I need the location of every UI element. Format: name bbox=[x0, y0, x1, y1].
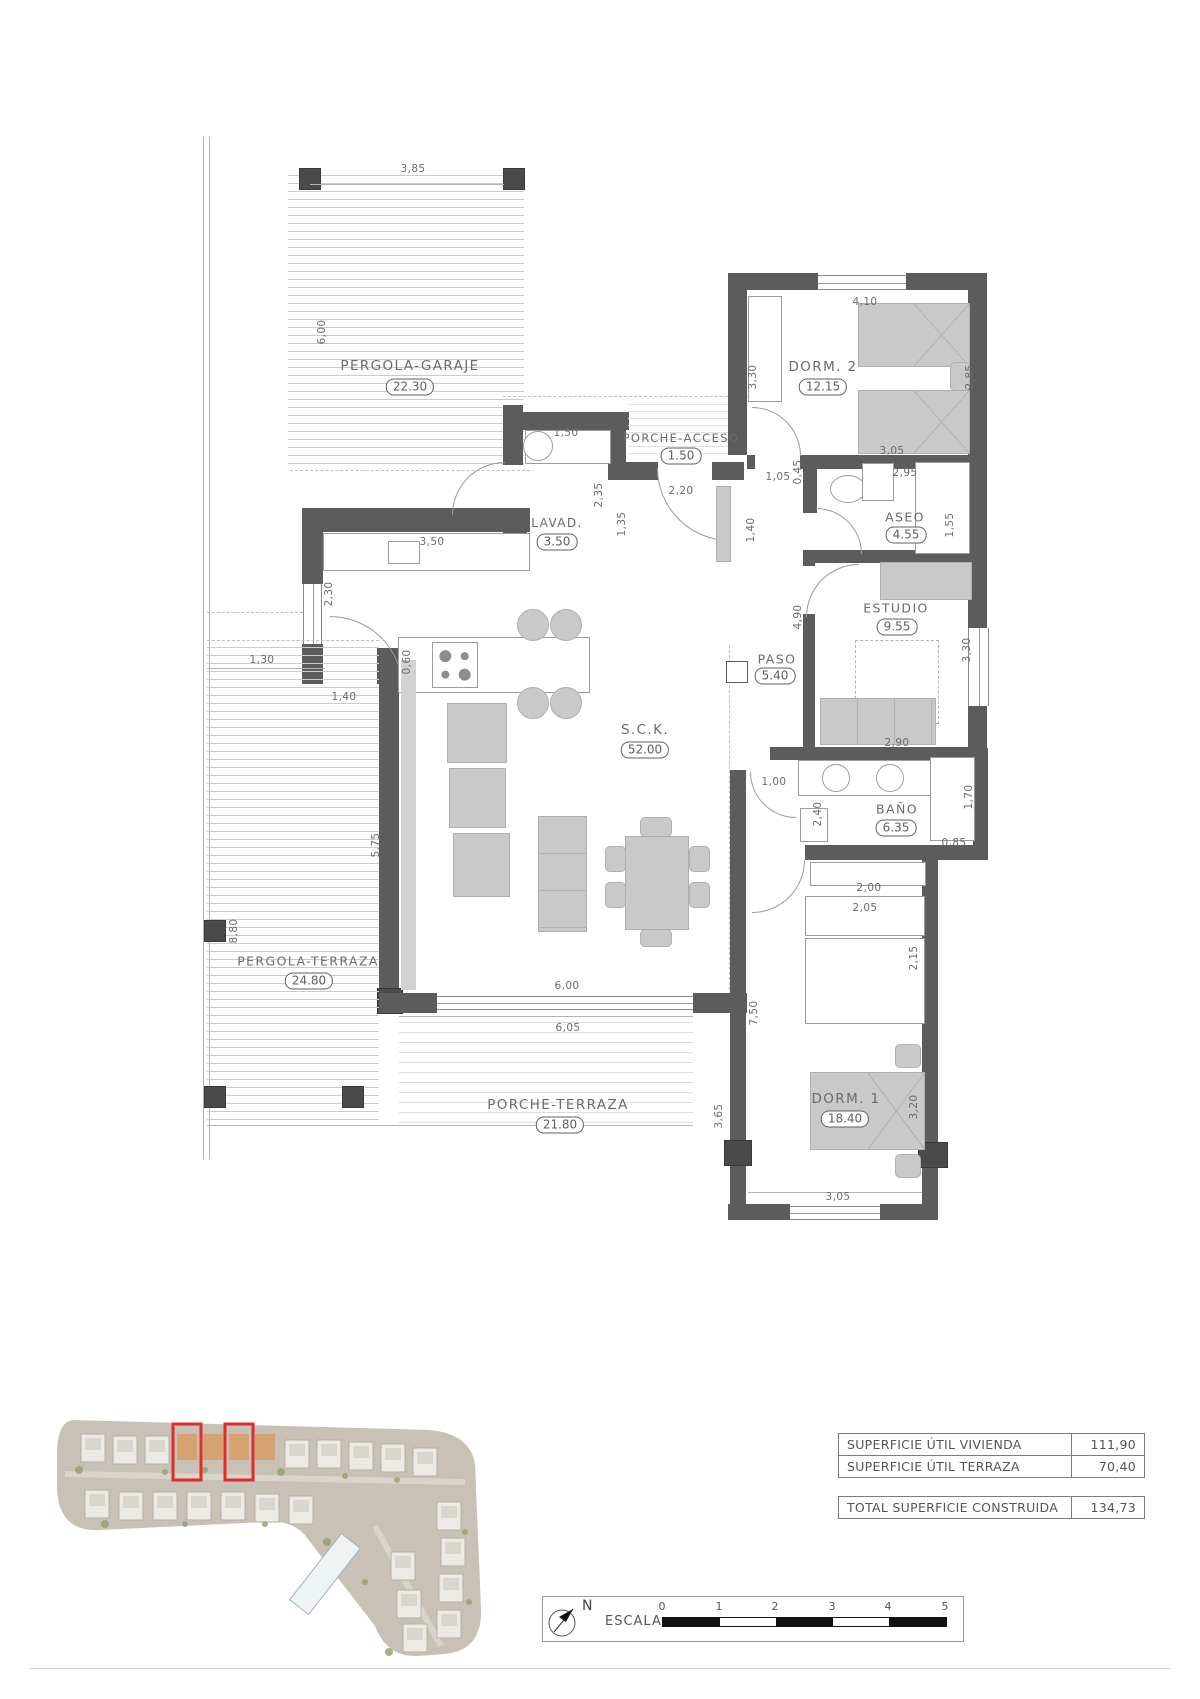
chair bbox=[605, 882, 626, 908]
dining-table bbox=[625, 836, 689, 930]
north-label: N bbox=[582, 1598, 592, 1614]
dim-text: 3,30 bbox=[747, 365, 759, 390]
total-surface-table: TOTAL SUPERFICIE CONSTRUIDA 134,73 bbox=[838, 1496, 1145, 1519]
bano-sink bbox=[876, 764, 904, 792]
dim-line bbox=[399, 1016, 693, 1017]
dim-text: 1,30 bbox=[250, 654, 275, 666]
room-area: 21.80 bbox=[536, 1117, 584, 1134]
room-area: 6.35 bbox=[876, 820, 917, 837]
wall-segment bbox=[728, 1204, 790, 1220]
bano-sink bbox=[822, 764, 850, 792]
scalebar-seg bbox=[720, 1618, 777, 1626]
nightstand bbox=[895, 1044, 921, 1068]
terrace-edge bbox=[207, 1125, 693, 1126]
dim-text: 2,35 bbox=[593, 483, 605, 508]
dim-text: 4,90 bbox=[792, 605, 804, 630]
kitchen-island bbox=[398, 637, 590, 693]
wall-segment bbox=[880, 1204, 938, 1220]
coffee-table bbox=[449, 768, 506, 828]
terrace-blind bbox=[401, 660, 416, 990]
scalebar-tick: 3 bbox=[829, 1600, 836, 1613]
dim-text: 2,85 bbox=[964, 365, 976, 390]
chair bbox=[605, 846, 626, 872]
dim-text: 2,20 bbox=[669, 485, 694, 497]
room-area: 12.15 bbox=[799, 379, 847, 396]
dim-text: 4,10 bbox=[853, 296, 878, 308]
dim-text: 1,35 bbox=[616, 512, 628, 537]
stool bbox=[550, 687, 582, 719]
estudio-sofa bbox=[820, 698, 936, 745]
room-label: PERGOLA-GARAJE bbox=[340, 358, 479, 374]
room-label: DORM. 2 bbox=[788, 359, 857, 375]
footer-rule bbox=[30, 1668, 1170, 1669]
wall-segment bbox=[973, 748, 988, 848]
room-label: PORCHE-ACCESO bbox=[623, 431, 740, 445]
dim-text: 3,20 bbox=[908, 1095, 920, 1120]
dim-text: 3,65 bbox=[713, 1104, 725, 1129]
dim-text: 2,00 bbox=[857, 882, 882, 894]
pergola-column bbox=[299, 168, 321, 190]
dim-text: 2,95 bbox=[893, 467, 918, 479]
dim-text: 1,40 bbox=[745, 518, 757, 543]
wall-segment bbox=[803, 550, 815, 566]
wall-segment bbox=[747, 455, 755, 469]
wall-segment bbox=[379, 993, 437, 1013]
scalebar-seg bbox=[663, 1618, 720, 1626]
room-area: 22.30 bbox=[386, 379, 434, 396]
wall-segment bbox=[379, 684, 399, 1014]
bano-vanity bbox=[798, 760, 932, 796]
dim-text: 0,85 bbox=[942, 837, 967, 849]
dim-text: 2,30 bbox=[323, 582, 335, 607]
estudio-cabinet bbox=[880, 562, 972, 600]
scalebar-tick: 1 bbox=[716, 1600, 723, 1613]
kitchen-window bbox=[303, 584, 322, 644]
washing-machine bbox=[523, 431, 553, 461]
hall-radiator bbox=[716, 486, 731, 562]
dim-text: 1,70 bbox=[963, 785, 975, 810]
room-area: 3.50 bbox=[537, 534, 578, 551]
pergola-column bbox=[503, 168, 525, 190]
surface-label: TOTAL SUPERFICIE CONSTRUIDA bbox=[839, 1497, 1072, 1519]
chair bbox=[689, 846, 710, 872]
nightstand bbox=[895, 1154, 921, 1178]
wall-segment bbox=[728, 273, 747, 455]
stool bbox=[517, 687, 549, 719]
aseo-cistern bbox=[862, 463, 894, 501]
armchair bbox=[453, 833, 510, 897]
dim-line bbox=[310, 184, 504, 185]
aseo-sink bbox=[830, 475, 866, 503]
pergola-terraza-hatch bbox=[207, 640, 379, 1125]
surface-table: SUPERFICIE ÚTIL VIVIENDA 111,90 SUPERFIC… bbox=[838, 1433, 1145, 1478]
paso-dash bbox=[729, 645, 730, 990]
room-area: 5.40 bbox=[755, 668, 796, 685]
stool bbox=[550, 609, 582, 641]
paso-marker bbox=[726, 661, 748, 683]
plan-sheet: PERGOLA-GARAJE 22.30 PORCHE-ACCESO 1.50 … bbox=[0, 0, 1200, 1699]
terrace-column bbox=[204, 1086, 226, 1108]
dim-text: 3,05 bbox=[826, 1191, 851, 1203]
chair bbox=[689, 882, 710, 908]
north-arrow-icon bbox=[546, 1604, 582, 1638]
room-label: ESTUDIO bbox=[863, 601, 929, 616]
surface-label: SUPERFICIE ÚTIL TERRAZA bbox=[839, 1456, 1072, 1478]
dorm1-wardrobe bbox=[805, 938, 925, 1024]
table-row: SUPERFICIE ÚTIL TERRAZA 70,40 bbox=[839, 1456, 1145, 1478]
room-area: 24.80 bbox=[285, 973, 333, 990]
site-plan-aerial bbox=[45, 1412, 485, 1670]
scalebar-seg bbox=[833, 1618, 890, 1626]
wall-segment bbox=[608, 462, 658, 480]
room-area: 4.55 bbox=[886, 527, 927, 544]
surface-value: 70,40 bbox=[1072, 1456, 1145, 1478]
dim-text: 1,50 bbox=[554, 427, 579, 439]
dim-text: 1,55 bbox=[944, 513, 956, 538]
roof-dash bbox=[207, 612, 303, 613]
aseo-door-arc bbox=[816, 508, 862, 554]
wall-segment bbox=[728, 273, 818, 290]
table-row: SUPERFICIE ÚTIL VIVIENDA 111,90 bbox=[839, 1434, 1145, 1456]
chair bbox=[640, 929, 672, 947]
boundary-line bbox=[203, 137, 204, 1159]
dim-line bbox=[207, 668, 325, 669]
scalebar-seg bbox=[776, 1618, 833, 1626]
armchair bbox=[447, 703, 507, 763]
surface-value: 111,90 bbox=[1072, 1434, 1145, 1456]
dim-text: 3,85 bbox=[401, 163, 426, 175]
dim-text: 3,05 bbox=[880, 445, 905, 457]
dim-text: 1,40 bbox=[332, 691, 357, 703]
scalebar-tick: 4 bbox=[885, 1600, 892, 1613]
wall-segment bbox=[968, 706, 987, 748]
dim-text: 2,15 bbox=[908, 946, 920, 971]
stool bbox=[517, 609, 549, 641]
scalebar bbox=[662, 1617, 947, 1627]
bed-single bbox=[858, 390, 970, 454]
dim-text: 6,00 bbox=[555, 980, 580, 992]
scalebar-tick: 5 bbox=[942, 1600, 949, 1613]
room-area: 52.00 bbox=[621, 742, 669, 759]
dim-text: 3,50 bbox=[420, 536, 445, 548]
dorm1-window bbox=[790, 1206, 880, 1220]
room-label: S.C.K. bbox=[621, 722, 669, 738]
dorm1-door-arc bbox=[752, 860, 805, 913]
bed-single bbox=[858, 303, 970, 367]
dim-text: 1,00 bbox=[762, 776, 787, 788]
surface-value: 134,73 bbox=[1072, 1497, 1145, 1519]
wall-segment bbox=[803, 455, 817, 513]
dim-text: 5,75 bbox=[370, 833, 382, 858]
wall-segment bbox=[302, 508, 323, 584]
room-area: 9.55 bbox=[877, 619, 918, 636]
dim-text: 2,90 bbox=[885, 737, 910, 749]
sck-window bbox=[437, 996, 693, 1010]
kitchen-sink bbox=[388, 541, 420, 564]
estudio-door-arc bbox=[806, 564, 859, 617]
scalebar-seg bbox=[889, 1618, 946, 1626]
cooktop bbox=[432, 642, 478, 688]
roof-dash bbox=[503, 396, 758, 397]
room-label: DORM. 1 bbox=[811, 1091, 880, 1107]
dim-text: 8,80 bbox=[228, 919, 240, 944]
dorm2-door-arc bbox=[752, 407, 801, 456]
wall-column bbox=[724, 1140, 752, 1166]
wall-segment bbox=[803, 614, 815, 750]
terrace-door-arc bbox=[330, 616, 403, 689]
scalebar-tick: 0 bbox=[659, 1600, 666, 1613]
terrace-column bbox=[204, 920, 226, 942]
room-label: PASO bbox=[758, 652, 797, 667]
dim-text: 0,45 bbox=[792, 460, 804, 485]
room-label: BAÑO bbox=[876, 802, 918, 817]
dim-text: 0,60 bbox=[401, 650, 413, 675]
room-label: LAVAD. bbox=[531, 516, 583, 530]
dim-text: 6,00 bbox=[316, 320, 328, 345]
dim-text: 6,05 bbox=[556, 1022, 581, 1034]
terrace-column bbox=[342, 1086, 364, 1108]
scalebar-tick: 2 bbox=[772, 1600, 779, 1613]
dim-text: 2,40 bbox=[812, 802, 824, 827]
chair bbox=[640, 817, 672, 837]
sofa bbox=[538, 816, 587, 932]
room-label: PORCHE-TERRAZA bbox=[487, 1097, 629, 1113]
table-row: TOTAL SUPERFICIE CONSTRUIDA 134,73 bbox=[839, 1497, 1145, 1519]
surface-label: SUPERFICIE ÚTIL VIVIENDA bbox=[839, 1434, 1072, 1456]
dim-text: 7,50 bbox=[748, 1001, 760, 1026]
dorm2-window bbox=[818, 275, 906, 290]
room-label: ASEO bbox=[885, 510, 925, 525]
dim-text: 3,30 bbox=[961, 638, 973, 663]
wall-segment bbox=[880, 845, 988, 860]
room-area: 18.40 bbox=[821, 1111, 869, 1128]
room-label: PERGOLA-TERRAZA bbox=[237, 954, 379, 969]
room-area: 1.50 bbox=[661, 448, 702, 465]
dim-text: 2,05 bbox=[853, 902, 878, 914]
dim-text: 1,05 bbox=[766, 471, 791, 483]
